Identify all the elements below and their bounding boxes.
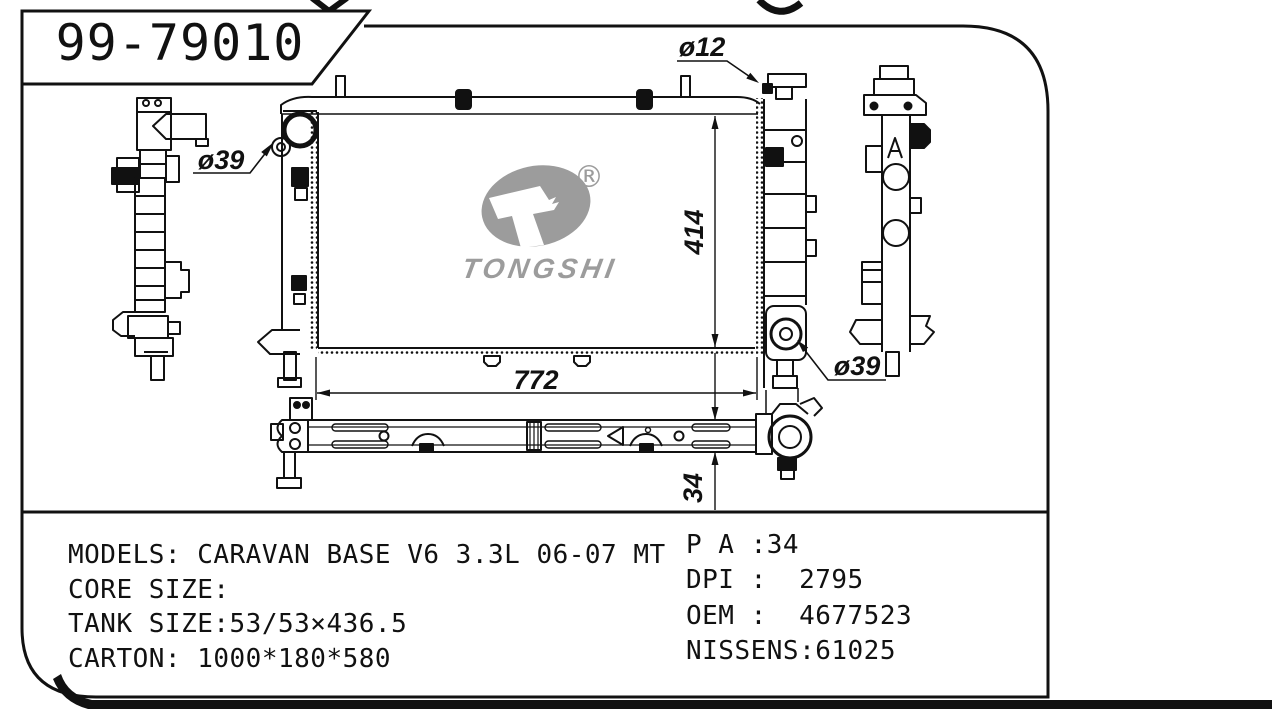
radiator-right-tank-profile [756, 74, 816, 388]
spec-oem: OEM : 4677523 [686, 601, 912, 631]
callout-dia39-bottom-right: ø39 [834, 351, 881, 381]
spec-core-size: CORE SIZE: [68, 575, 230, 605]
callout-dia12-top-right: ø12 [679, 32, 726, 62]
tongshi-logo: ® TONGSHI [459, 155, 620, 284]
scan-artifact-marks [312, 0, 801, 11]
bottom-black-bar [53, 674, 1272, 709]
dim-label-core-height: 414 [679, 209, 709, 255]
radiator-side-view-right [850, 66, 934, 376]
callout-dia39-top-left: ø39 [198, 145, 245, 175]
dim-label-crossmember-height: 34 [678, 473, 708, 503]
catalog-page: 772 414 34 ø39 ø12 ø39 ® TONGSHI 99-7901… [0, 0, 1272, 714]
logo-wordmark: TONGSHI [459, 252, 620, 284]
spec-models: MODELS: CARAVAN BASE V6 3.3L 06-07 MT [68, 540, 666, 570]
spec-carton: CARTON: 1000*180*580 [68, 644, 391, 674]
spec-dpi: DPI : 2795 [686, 565, 864, 595]
spec-pa: P A :34 [686, 530, 799, 560]
bottom-crossmember-view [271, 388, 822, 488]
radiator-technical-drawing: 772 414 34 ø39 ø12 ø39 ® TONGSHI [0, 0, 1272, 714]
radiator-left-side-view [112, 98, 208, 380]
spec-nissens: NISSENS:61025 [686, 636, 896, 666]
dim-label-core-width: 772 [513, 365, 558, 395]
part-number: 99-79010 [30, 14, 330, 72]
spec-tank-size: TANK SIZE:53/53×436.5 [68, 609, 407, 639]
registered-trademark-icon: ® [574, 160, 604, 195]
